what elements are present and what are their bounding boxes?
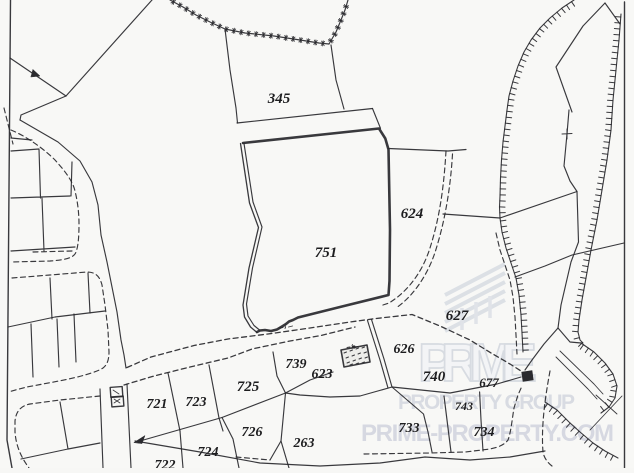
svg-text:725: 725 xyxy=(237,379,260,395)
svg-text:623: 623 xyxy=(312,367,333,382)
svg-text:721: 721 xyxy=(147,397,168,412)
svg-text:722: 722 xyxy=(155,458,176,468)
svg-text:626: 626 xyxy=(394,342,415,357)
svg-text:724: 724 xyxy=(198,445,219,460)
svg-text:263: 263 xyxy=(293,436,315,451)
svg-text:743: 743 xyxy=(455,399,473,413)
svg-text:751: 751 xyxy=(315,245,338,261)
svg-text:734: 734 xyxy=(474,425,495,440)
svg-text:726: 726 xyxy=(242,425,263,440)
svg-text:739: 739 xyxy=(286,357,307,372)
svg-text:627: 627 xyxy=(446,308,469,324)
svg-text:723: 723 xyxy=(186,395,207,410)
svg-text:733: 733 xyxy=(399,421,420,436)
svg-text:PROPERTY GROUP: PROPERTY GROUP xyxy=(398,391,575,414)
svg-text:345: 345 xyxy=(267,91,291,107)
svg-text:624: 624 xyxy=(401,206,424,222)
svg-text:677: 677 xyxy=(479,375,499,390)
svg-text:740: 740 xyxy=(423,369,446,385)
